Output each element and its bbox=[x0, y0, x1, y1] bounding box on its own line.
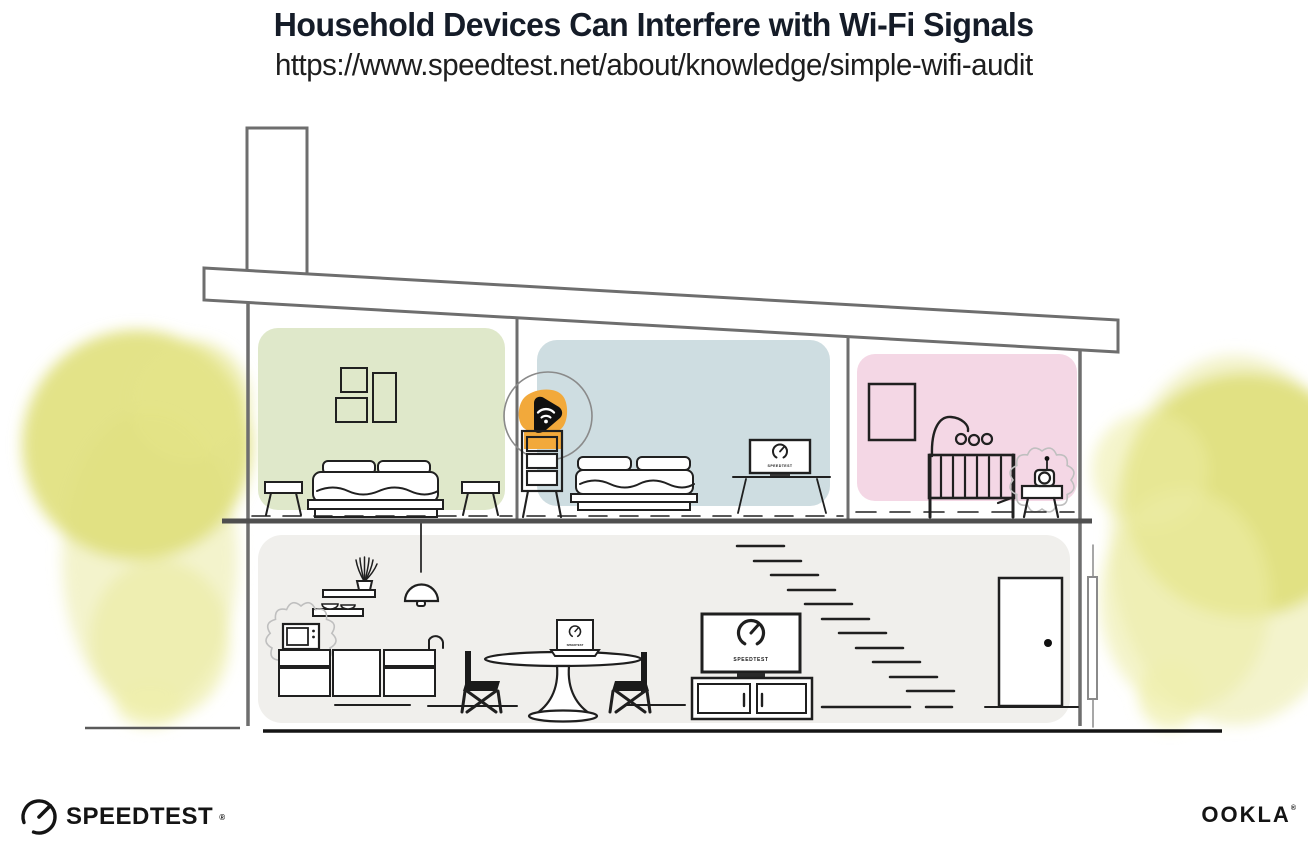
ookla-logo: OOKLA® bbox=[1201, 802, 1296, 828]
tv-speedtest-icon: SPEEDTEST bbox=[750, 440, 810, 473]
tv-screen-label: SPEEDTEST bbox=[768, 464, 793, 468]
speedtest-logo: SPEEDTEST® bbox=[18, 796, 225, 838]
infographic: Household Devices Can Interfere with Wi-… bbox=[0, 0, 1308, 861]
chimney bbox=[247, 128, 307, 276]
speedtest-wordmark: SPEEDTEST bbox=[66, 803, 213, 831]
house-illustration: SPEEDTEST bbox=[0, 0, 1308, 861]
foliage-left-icon bbox=[22, 330, 252, 727]
media-console-icon bbox=[692, 678, 812, 719]
door-knob bbox=[1044, 639, 1052, 647]
tv-screen-label: SPEEDTEST bbox=[733, 657, 768, 663]
ookla-wordmark: OOKLA bbox=[1201, 802, 1290, 827]
floor-contact-lines bbox=[335, 705, 685, 706]
speedtest-gauge-icon bbox=[18, 796, 60, 838]
downspout-icon bbox=[1088, 545, 1097, 727]
microwave-icon bbox=[283, 624, 319, 649]
foliage-right-icon bbox=[1092, 355, 1308, 729]
bed-icon bbox=[308, 461, 443, 517]
tv-speedtest-icon: SPEEDTEST bbox=[702, 614, 800, 677]
speedtest-trademark: ® bbox=[219, 813, 225, 822]
laptop-screen-label: SPEEDTEST bbox=[567, 643, 584, 647]
ookla-trademark: ® bbox=[1291, 805, 1296, 812]
laptop-speedtest-icon: SPEEDTEST bbox=[551, 620, 599, 656]
